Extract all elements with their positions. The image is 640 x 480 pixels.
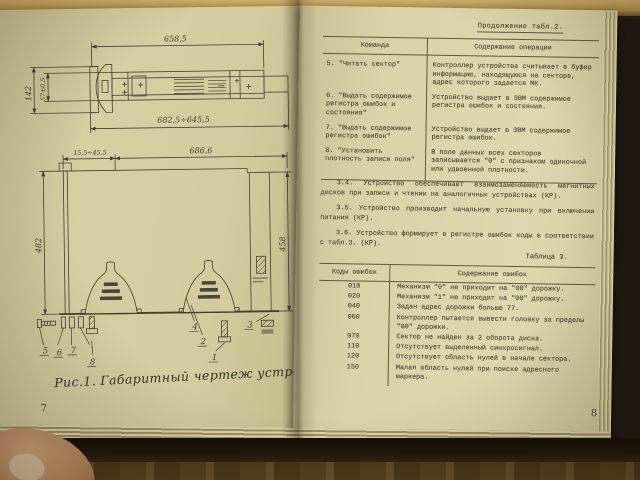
- dim-height-inner: 57±0,5: [40, 78, 47, 101]
- table2-col1-header: Команда: [323, 37, 427, 55]
- right-page: Продолжение табл.2. Команда Содержание о…: [293, 6, 618, 453]
- table-row: 6. "Выдать содержимое регистра ошибок и …: [322, 92, 598, 122]
- paragraph-3-4: 3.4. Устройство обеспечивает взаимозамен…: [320, 178, 594, 202]
- callout-7: 7: [71, 346, 77, 356]
- side-view: 658,5: [23, 33, 288, 134]
- thumb-nail: [6, 450, 47, 480]
- table2-cmd: 8. "Установить плотность записи поля": [321, 147, 425, 174]
- body-paragraphs: 3.4. Устройство обеспечивает взаимозамен…: [320, 178, 595, 257]
- front-view: 15,5÷45,5 686,6: [33, 145, 294, 369]
- table-row: 150 Малая область нулей при поиске адрес…: [318, 362, 594, 385]
- error-code: 110: [318, 342, 388, 352]
- page-number-left: 7: [40, 403, 47, 414]
- wood-grain: [0, 462, 640, 480]
- callout-4: 4: [191, 322, 198, 332]
- book-photo: 658,5: [0, 0, 640, 480]
- table-wood-bottom: [0, 438, 640, 480]
- table2-continuation-header: Продолжение табл.2.: [478, 22, 564, 33]
- error-code: 020: [319, 292, 389, 302]
- paragraph-3-6: 3.6. Устройство формирует в регистре оши…: [320, 228, 594, 252]
- table-row: 8. "Установить плотность записи поля" В …: [321, 147, 597, 177]
- table2-desc: Устройство выдает в ЭВМ содержимое регис…: [426, 93, 598, 121]
- table-row: 7. "Выдать содержимое регистра ошибок" У…: [321, 123, 597, 145]
- callout-3: 3: [247, 320, 253, 330]
- callout-6: 6: [57, 348, 63, 358]
- dim-top-length: 658,5: [164, 34, 187, 43]
- book-gutter: [282, 0, 318, 474]
- callout-1: 1: [212, 353, 218, 363]
- dim-height-left: 482: [34, 238, 43, 254]
- table3-col2-header: Содержание ошибок: [389, 265, 595, 284]
- error-code: 070: [318, 332, 388, 342]
- shock-mount-left: [81, 262, 142, 315]
- table2-desc: В поле данных всех секторов записывается…: [425, 148, 597, 176]
- error-code: 060: [318, 312, 388, 332]
- table-row: 5. "Читать сектор" Контроллер устройства…: [322, 60, 598, 90]
- fastener-parts: [37, 314, 273, 344]
- table3-col1-header: Коды ошибок: [319, 264, 389, 281]
- table2-header-row: Команда Содержание операции: [323, 37, 599, 58]
- dim-height-outer: 142: [24, 86, 33, 101]
- dim-width-top: 686,6: [189, 146, 212, 155]
- left-page: 658,5: [0, 6, 305, 446]
- error-code: 120: [318, 352, 388, 362]
- table3-error-codes: Коды ошибок Содержание ошибок 010 Механи…: [318, 263, 596, 389]
- error-code: 040: [319, 302, 389, 312]
- table2-cmd: 6. "Выдать содержимое регистра ошибок и …: [322, 92, 426, 119]
- error-code: 150: [318, 362, 388, 382]
- error-code: 010: [319, 282, 389, 292]
- error-desc: Контроллер пытается вывести головку за п…: [388, 314, 594, 336]
- dim-offset-top: 15,5÷45,5: [73, 149, 106, 156]
- paragraph-3-5: 3.5. Устройство производит начальную уст…: [320, 203, 594, 227]
- table2-col2-header: Содержание операции: [427, 39, 599, 58]
- dim-bottom-length: 682,5÷645,5: [157, 115, 210, 125]
- table3-caption: Таблица 3.: [525, 253, 567, 262]
- table2-cmd: 5. "Читать сектор": [322, 60, 426, 87]
- table2-continuation: Команда Содержание операции 5. "Читать с…: [321, 36, 599, 184]
- table2-cmd: 7. "Выдать содержимое регистра ошибок": [321, 123, 425, 142]
- callout-8: 8: [90, 358, 96, 368]
- error-desc: Малая область нулей при поиске адресного…: [388, 364, 594, 386]
- callout-2: 2: [200, 337, 207, 347]
- shock-mount-right: [178, 260, 239, 313]
- table2-desc: Устройство выдает в ЭВМ содержимое регис…: [425, 125, 597, 145]
- callout-5: 5: [43, 346, 49, 356]
- page-number-right: 8: [591, 408, 598, 419]
- table2-desc: Контроллер устройства считывает в буфер …: [426, 62, 598, 90]
